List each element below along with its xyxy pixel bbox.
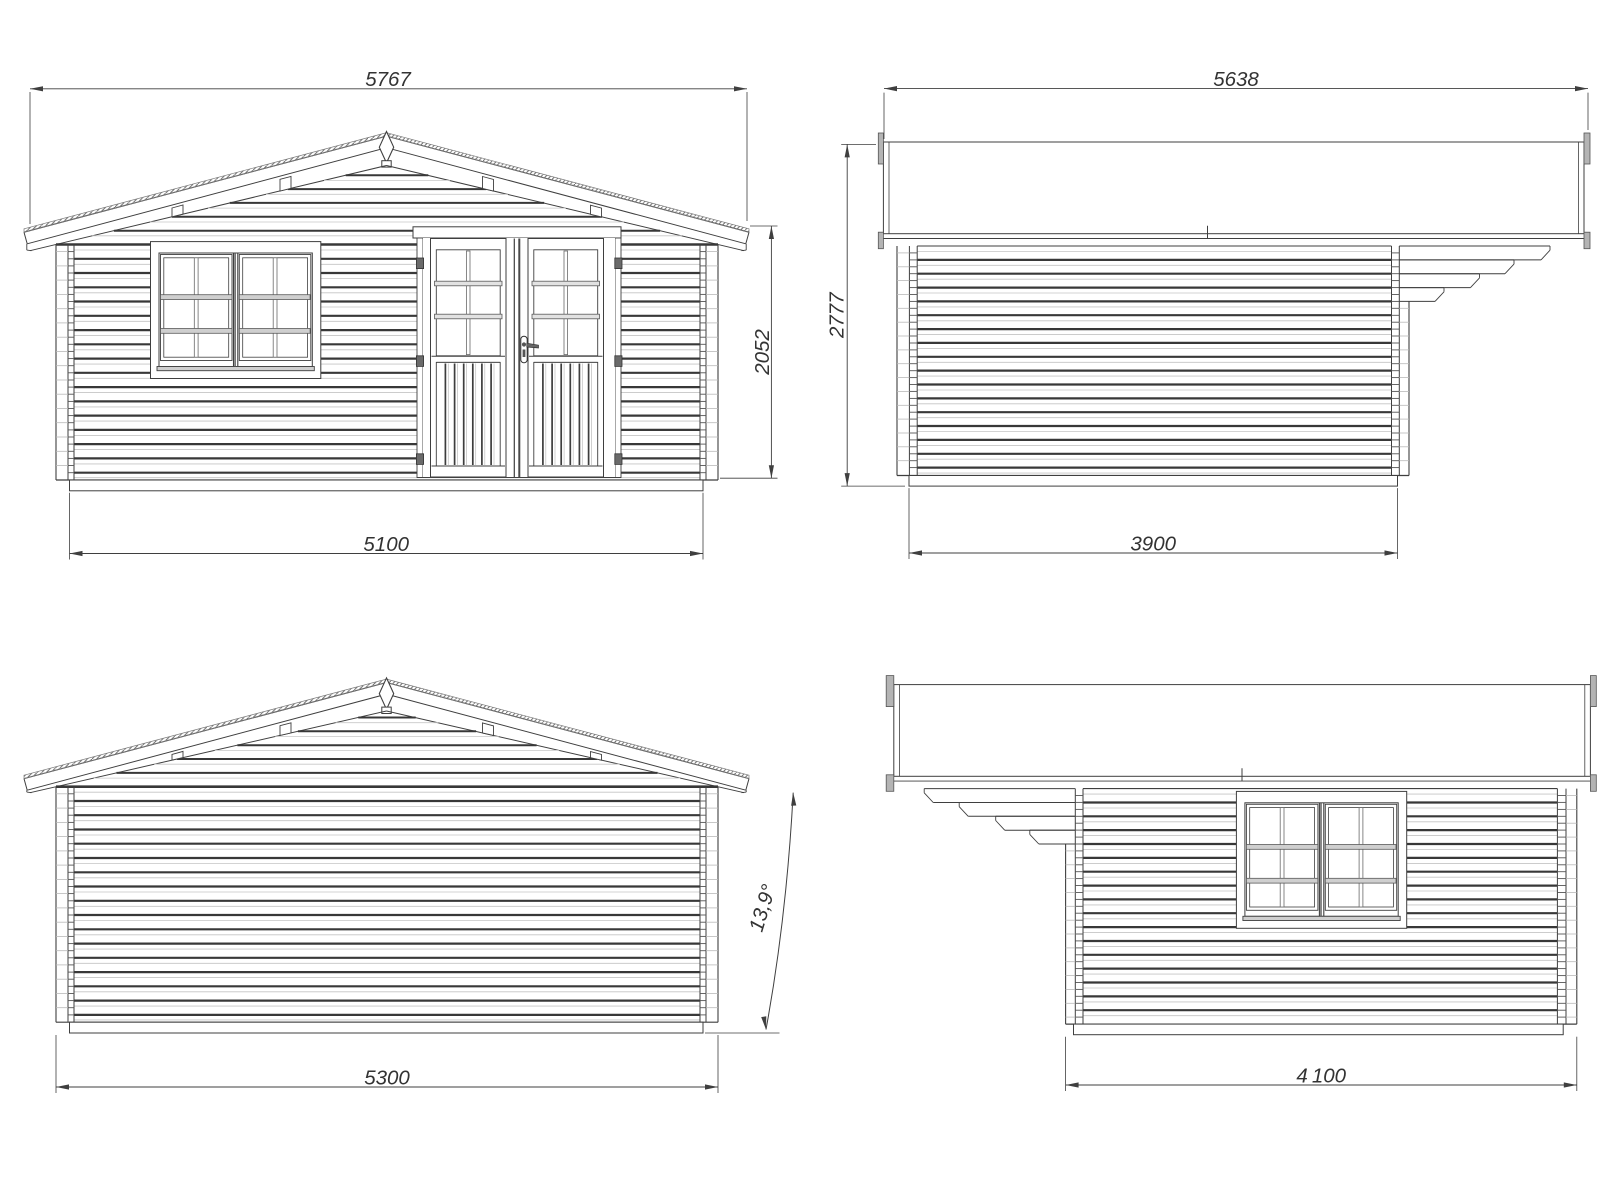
- svg-text:2777: 2777: [825, 291, 848, 339]
- svg-text:3900: 3900: [1130, 533, 1176, 556]
- svg-text:5100: 5100: [363, 533, 409, 556]
- svg-text:2052: 2052: [751, 329, 774, 376]
- svg-text:4 100: 4 100: [1296, 1065, 1346, 1088]
- svg-text:5767: 5767: [365, 68, 412, 91]
- svg-text:5638: 5638: [1213, 68, 1259, 91]
- svg-text:5300: 5300: [364, 1067, 410, 1090]
